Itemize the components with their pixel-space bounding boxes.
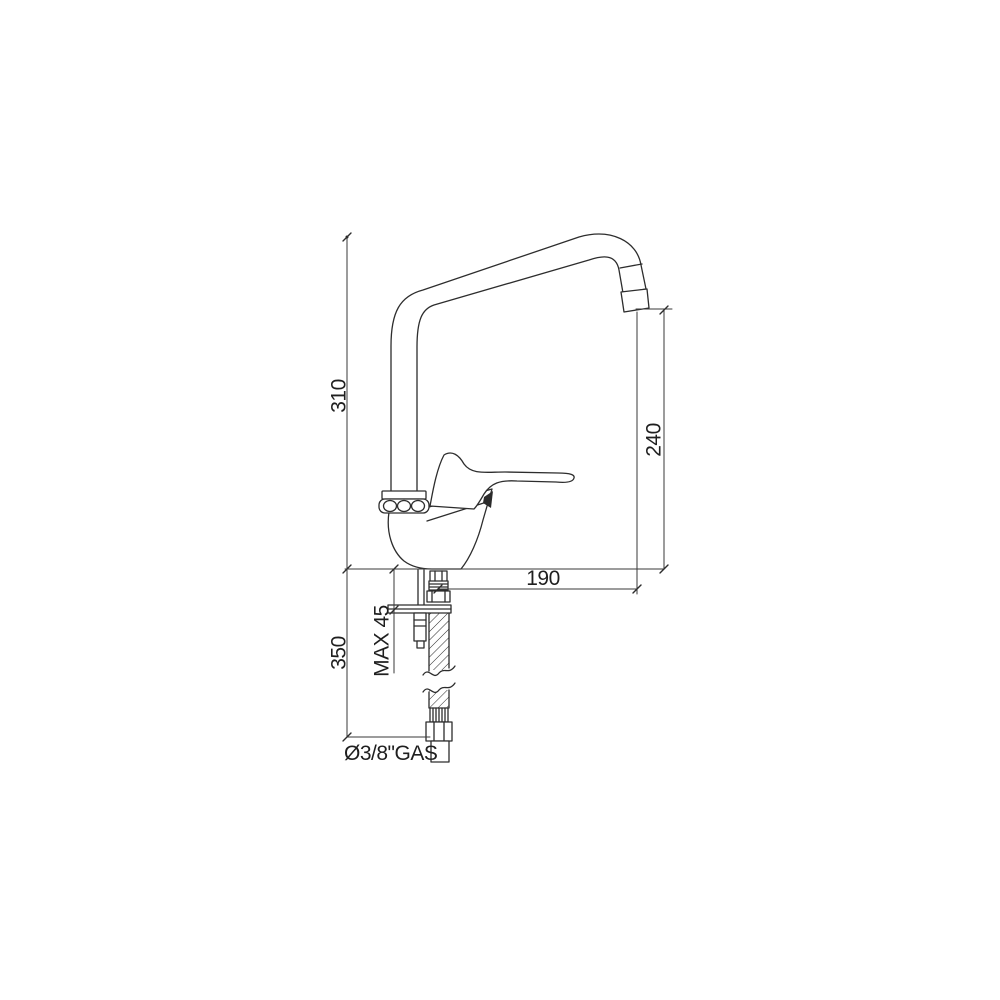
shank-nut xyxy=(427,591,450,602)
threaded-shank xyxy=(427,571,450,602)
lever-handle xyxy=(430,453,574,509)
mounting-stud-upper xyxy=(418,570,424,605)
spout-tube xyxy=(391,234,646,500)
technical-drawing-canvas: 310 240 190 350 xyxy=(0,0,1000,1000)
dim-label-310: 310 xyxy=(328,379,351,413)
flex-supply-hose xyxy=(423,613,455,708)
dimension-spout-height: 310 xyxy=(328,233,352,573)
ring-band xyxy=(382,491,426,499)
stud-nut xyxy=(414,613,426,641)
dim-label-240: 240 xyxy=(643,423,666,457)
dim-label-350: 350 xyxy=(328,636,351,670)
faucet-above-deck xyxy=(379,234,649,569)
dim-label-190: 190 xyxy=(526,567,560,590)
dimension-outlet-height: 240 xyxy=(636,306,672,573)
hex-connection-nut xyxy=(426,722,452,741)
hose-lower-hatch xyxy=(429,690,449,708)
hex-nut-body xyxy=(426,722,452,741)
dimensions: 310 240 190 350 xyxy=(328,233,673,765)
below-deck-assembly xyxy=(388,570,455,762)
faucet-dimension-drawing: 310 240 190 350 xyxy=(0,0,1000,1000)
hose-ribbed-collar xyxy=(430,708,448,722)
dimension-max-deck-thickness: MAX 45 xyxy=(371,565,399,677)
dim-label-connection-thread: Ø3/8"GAS xyxy=(344,742,438,765)
hose-upper-hatch xyxy=(429,613,449,670)
mounting-stud-lower xyxy=(414,613,426,648)
shank-block xyxy=(430,571,447,581)
swivel-ring-nut xyxy=(379,491,429,513)
stud-tip xyxy=(417,641,424,648)
dim-label-max45: MAX 45 xyxy=(371,605,394,677)
